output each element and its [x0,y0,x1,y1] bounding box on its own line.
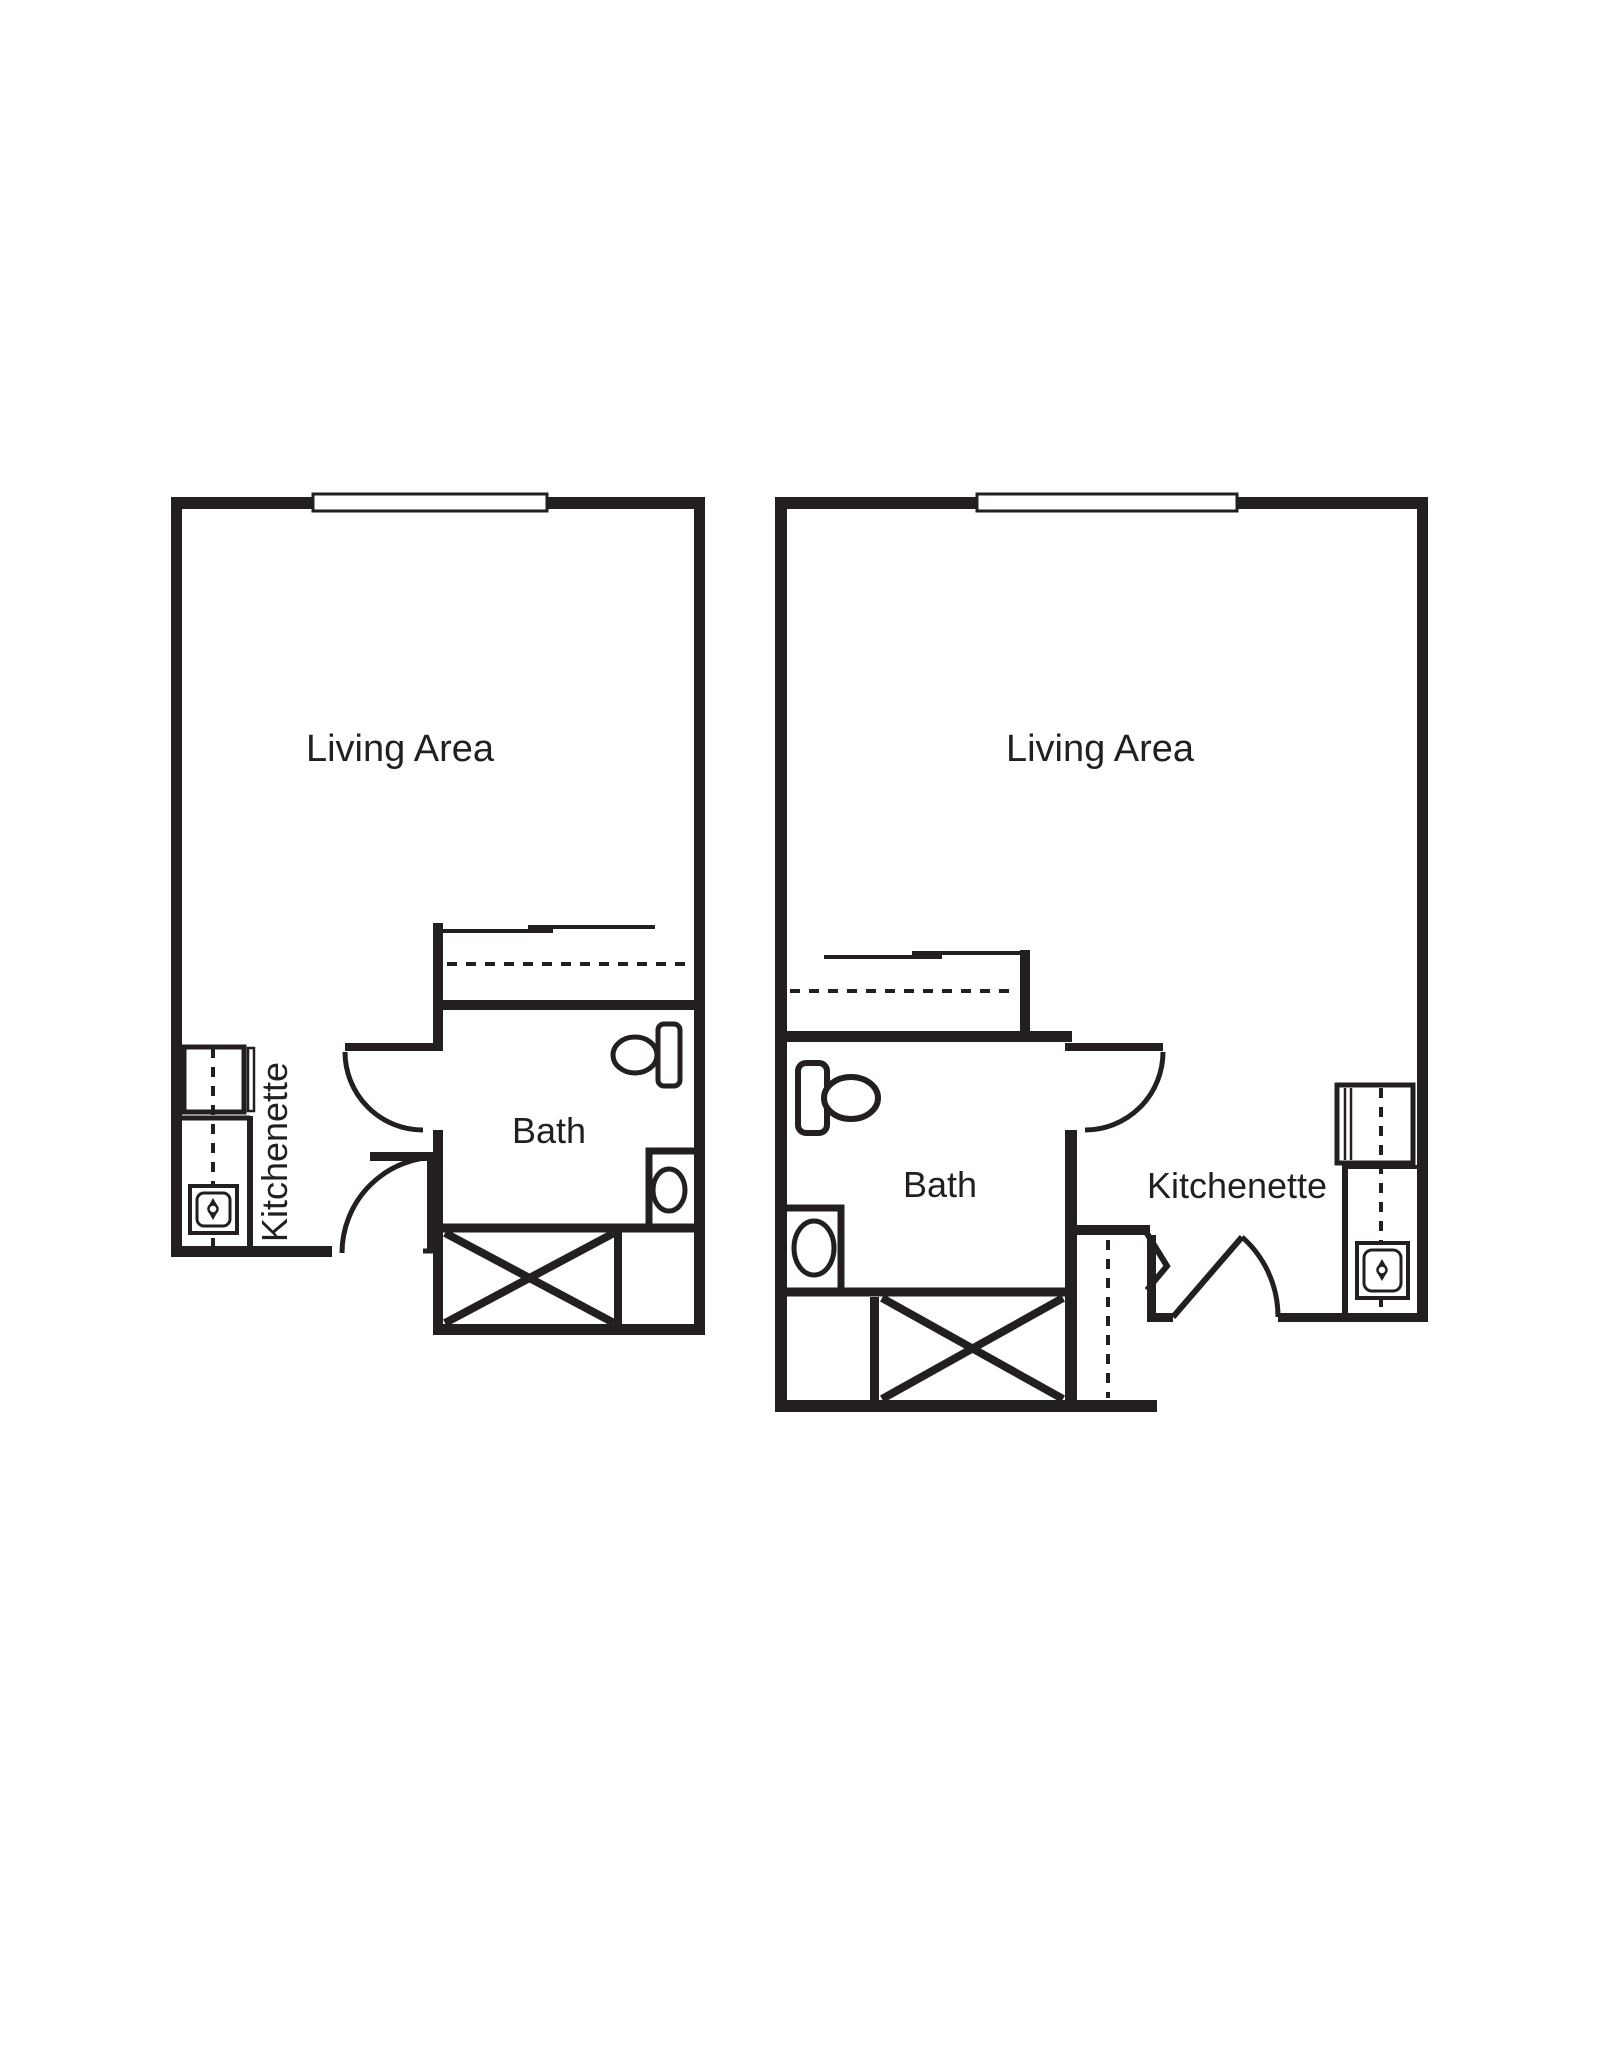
bath-door-leaf [1065,1043,1163,1051]
right-unit-kitchenette [1337,1085,1417,1313]
entry-door-swing-arc [342,1157,438,1253]
bath-door-leaf [345,1043,443,1051]
right-unit-closet [790,953,1025,991]
wall-left [775,497,787,1412]
right-unit-doors [1065,1043,1278,1398]
entry-door-swing-arc [1242,1237,1278,1317]
shower-icon [445,1232,622,1324]
wall-top-right-segment [1237,497,1428,509]
left-unit: Living Area Bath Kitchenette [171,494,705,1335]
floor-plan-page: Living Area Bath Kitchenette [0,0,1600,2070]
living-area-label: Living Area [306,728,495,770]
window-icon [313,494,547,511]
wall-bath-top [433,1000,705,1010]
entry-left-jamb [1147,1313,1173,1322]
bath-label: Bath [903,1164,977,1205]
living-area-label: Living Area [1006,728,1195,770]
wall-top-right-segment [547,497,705,509]
kitchen-sink-icon [190,1186,237,1233]
kitchenette-label: Kitchenette [254,1062,295,1242]
wall-bath-bottom [437,1324,705,1335]
refrigerator-icon [1337,1085,1413,1163]
entry-door-leaf [1173,1237,1242,1317]
left-unit-labels: Living Area Bath Kitchenette [254,728,586,1242]
wall-kitchenette-bottom [1278,1313,1428,1322]
wall-top-left-segment [171,497,313,509]
left-unit-closet [443,927,692,964]
left-unit-kitchenette [181,1047,254,1250]
right-unit-bath [781,1063,1072,1400]
wall-bath-bottom [775,1400,1157,1412]
wall-left [171,497,182,1257]
wall-bath-right-lower [1065,1130,1077,1412]
shower-icon [870,1297,1063,1400]
wall-bath-left-upper [433,923,443,1051]
right-unit-labels: Living Area Bath Kitchenette [903,728,1327,1206]
closet-jamb [1020,950,1030,1042]
vanity-sink-icon [649,1151,698,1226]
right-unit-walls [775,494,1428,1412]
bath-label: Bath [512,1110,586,1151]
toilet-icon [613,1024,680,1086]
bath-door-swing-arc [345,1052,423,1130]
toilet-icon [798,1063,878,1133]
floor-plan-diagram: Living Area Bath Kitchenette [0,0,1600,2070]
kitchen-sink-icon [1357,1243,1408,1298]
kitchenette-label: Kitchenette [1147,1165,1327,1206]
wall-top-left-segment [775,497,977,509]
bath-door-swing-arc [1085,1052,1163,1130]
window-icon [977,494,1237,511]
left-unit-bath [437,1024,705,1324]
vanity-sink-icon [781,1208,841,1288]
wall-right [1417,497,1428,1322]
nook-top-wall [1072,1225,1150,1235]
wall-right [694,497,705,1335]
right-unit: Living Area Bath Kitchenette [775,494,1428,1412]
left-unit-doors [342,1043,443,1253]
